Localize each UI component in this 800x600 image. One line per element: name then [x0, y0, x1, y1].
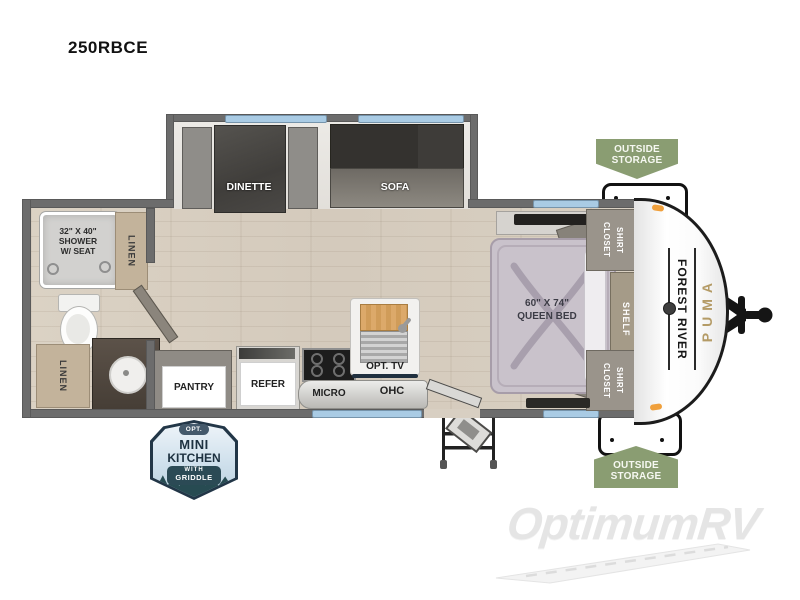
- window-sofa: [358, 115, 464, 123]
- wall-rear: [22, 199, 31, 418]
- model-logo: PUMA: [698, 252, 716, 368]
- opt-tv-label: OPT. TV: [352, 361, 418, 372]
- outside-storage-badge-top: OUTSIDE STORAGE: [596, 139, 678, 179]
- floorplan-canvas: 250RBCE DINETTE SOFA 32" X 40" SHOWER W/…: [0, 0, 800, 600]
- shelf-label: SHELF: [621, 302, 631, 337]
- dinette-bench-right: [288, 127, 318, 209]
- dinette-label: DINETTE: [204, 181, 294, 193]
- shirt-closet-upper-label: SHIRT CLOSET: [599, 222, 625, 257]
- queen-bed-label: 60" X 74" QUEEN BED: [492, 298, 602, 323]
- stove-cooktop: [302, 348, 356, 382]
- bathroom-wall-upper: [146, 208, 155, 263]
- dinette-table: [214, 125, 286, 213]
- stove-burners-icon: [304, 350, 354, 380]
- sofa-label: SOFA: [360, 181, 430, 193]
- mini-kitchen-opt-label: OPT.: [186, 426, 202, 433]
- brand-emblem-icon: [663, 302, 676, 315]
- ohc-label: OHC: [364, 385, 420, 397]
- bathroom-sink-drain-icon: [123, 370, 129, 376]
- bed-foot-console: [526, 398, 590, 408]
- mini-kitchen-mini-label: MINI: [150, 437, 238, 452]
- micro-label: MICRO: [300, 388, 358, 399]
- mini-kitchen-griddle-label: GRIDDLE: [167, 474, 221, 482]
- shirt-closet-upper: SHIRT CLOSET: [586, 209, 638, 271]
- mini-kitchen-kitchen-label: KITCHEN: [150, 451, 238, 465]
- shower-label: 32" X 40" SHOWER W/ SEAT: [43, 226, 113, 257]
- shirt-closet-lower-label: SHIRT CLOSET: [599, 363, 625, 398]
- pantry-label-box: PANTRY: [162, 366, 226, 408]
- bathroom-wall-lower: [146, 340, 155, 410]
- kitchen-sink: [360, 331, 408, 363]
- entry-steps: [436, 416, 508, 472]
- shower-drain-icon: [47, 263, 59, 275]
- refer-label: REFER: [251, 379, 285, 390]
- dinette-bench-left: [182, 127, 212, 209]
- pantry-label: PANTRY: [174, 382, 214, 393]
- mini-kitchen-griddle-pill: WITH GRIDDLE: [167, 466, 221, 485]
- window-kitchen: [312, 410, 422, 418]
- linen-lower-label: LINEN: [58, 360, 68, 392]
- refrigerator-top: [239, 348, 295, 359]
- toilet-seat: [66, 314, 90, 344]
- shower-head-icon: [99, 261, 111, 273]
- linen-upper-label: LINEN: [127, 235, 137, 267]
- window-dinette: [225, 115, 327, 123]
- opt-tv-screen: [352, 374, 418, 378]
- mini-kitchen-opt-pill: OPT.: [179, 424, 209, 435]
- wall-top-left: [22, 199, 174, 208]
- mini-kitchen-badge: OPT. MINI KITCHEN WITH GRIDDLE: [150, 420, 238, 500]
- slideout-wall-left: [166, 114, 174, 202]
- shirt-closet-lower: SHIRT CLOSET: [586, 350, 638, 411]
- refer-label-box: REFER: [240, 362, 296, 406]
- model-logo-text: PUMA: [699, 277, 715, 342]
- linen-cabinet-upper: LINEN: [115, 212, 148, 290]
- brand-logo-text: FOREST RIVER: [675, 259, 689, 360]
- page-title: 250RBCE: [68, 38, 148, 58]
- brand-wing-line-right: [694, 248, 696, 370]
- linen-cabinet-lower: LINEN: [36, 344, 90, 408]
- watermark-road-icon: [492, 538, 754, 584]
- bedroom-tv: [514, 214, 588, 225]
- slideout-wall-right: [470, 114, 478, 202]
- window-bedroom-bottom: [543, 410, 599, 418]
- entry-door-opening: [424, 409, 480, 418]
- window-bedroom-top: [533, 200, 599, 208]
- sofa-backrest: [330, 124, 464, 172]
